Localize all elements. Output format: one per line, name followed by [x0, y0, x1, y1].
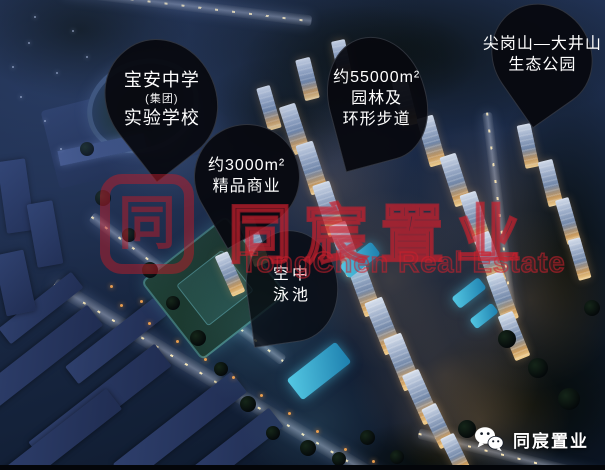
footer-brand: 同宸置业 — [474, 426, 589, 452]
callout-text: 空中 — [273, 266, 311, 285]
callout-text: 实验学校 — [124, 108, 200, 129]
wechat-icon — [474, 426, 504, 452]
footer-brand-label: 同宸置业 — [513, 427, 589, 452]
callout-text: 约55000m² — [333, 69, 420, 88]
callout-text: 园林及 — [351, 90, 402, 109]
callout-text: 宝安中学 — [124, 70, 200, 91]
callout-text: 生态公园 — [508, 57, 576, 76]
callout-text: (集团) — [145, 94, 178, 107]
promo-image: 宝安中学 (集团) 实验学校 约3000m² 精品商业 约55000m² 园林及… — [0, 0, 605, 470]
callout-text: 泳池 — [273, 287, 311, 306]
bottom-border — [0, 465, 605, 470]
callout-text: 尖岗山—大井山 — [482, 36, 601, 55]
callout-text: 约3000m² — [208, 157, 285, 176]
callout-text: 环形步道 — [343, 110, 411, 129]
callout-text: 精品商业 — [213, 178, 281, 197]
